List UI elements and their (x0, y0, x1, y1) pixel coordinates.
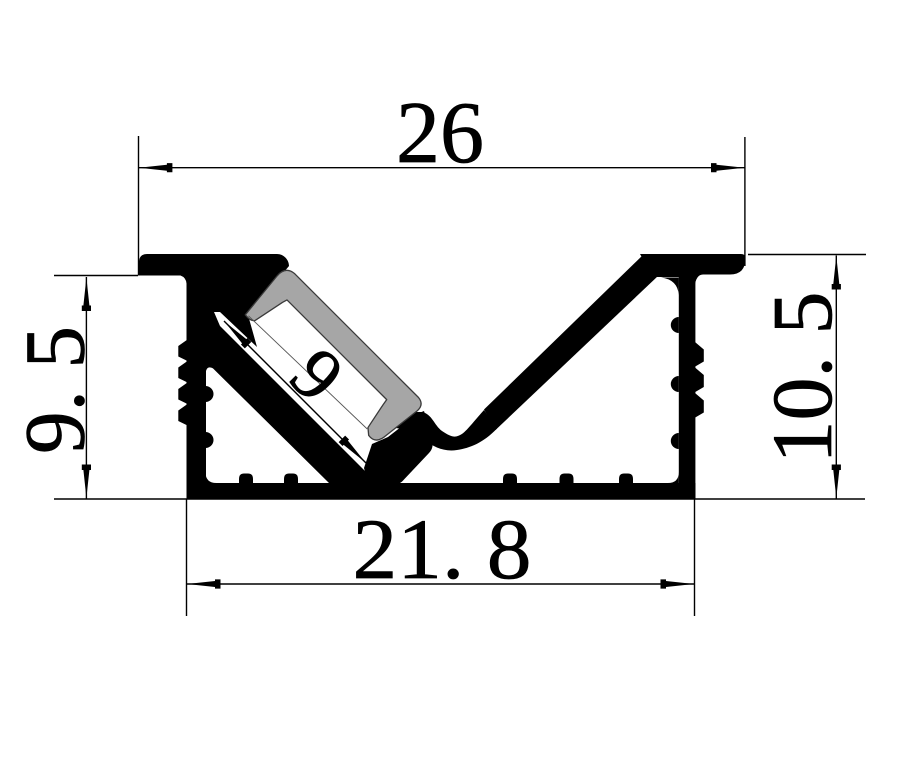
svg-text:21. 8: 21. 8 (353, 501, 532, 597)
svg-text:9. 5: 9. 5 (7, 326, 103, 454)
svg-text:10. 5: 10. 5 (754, 292, 850, 464)
svg-text:26: 26 (396, 85, 484, 182)
